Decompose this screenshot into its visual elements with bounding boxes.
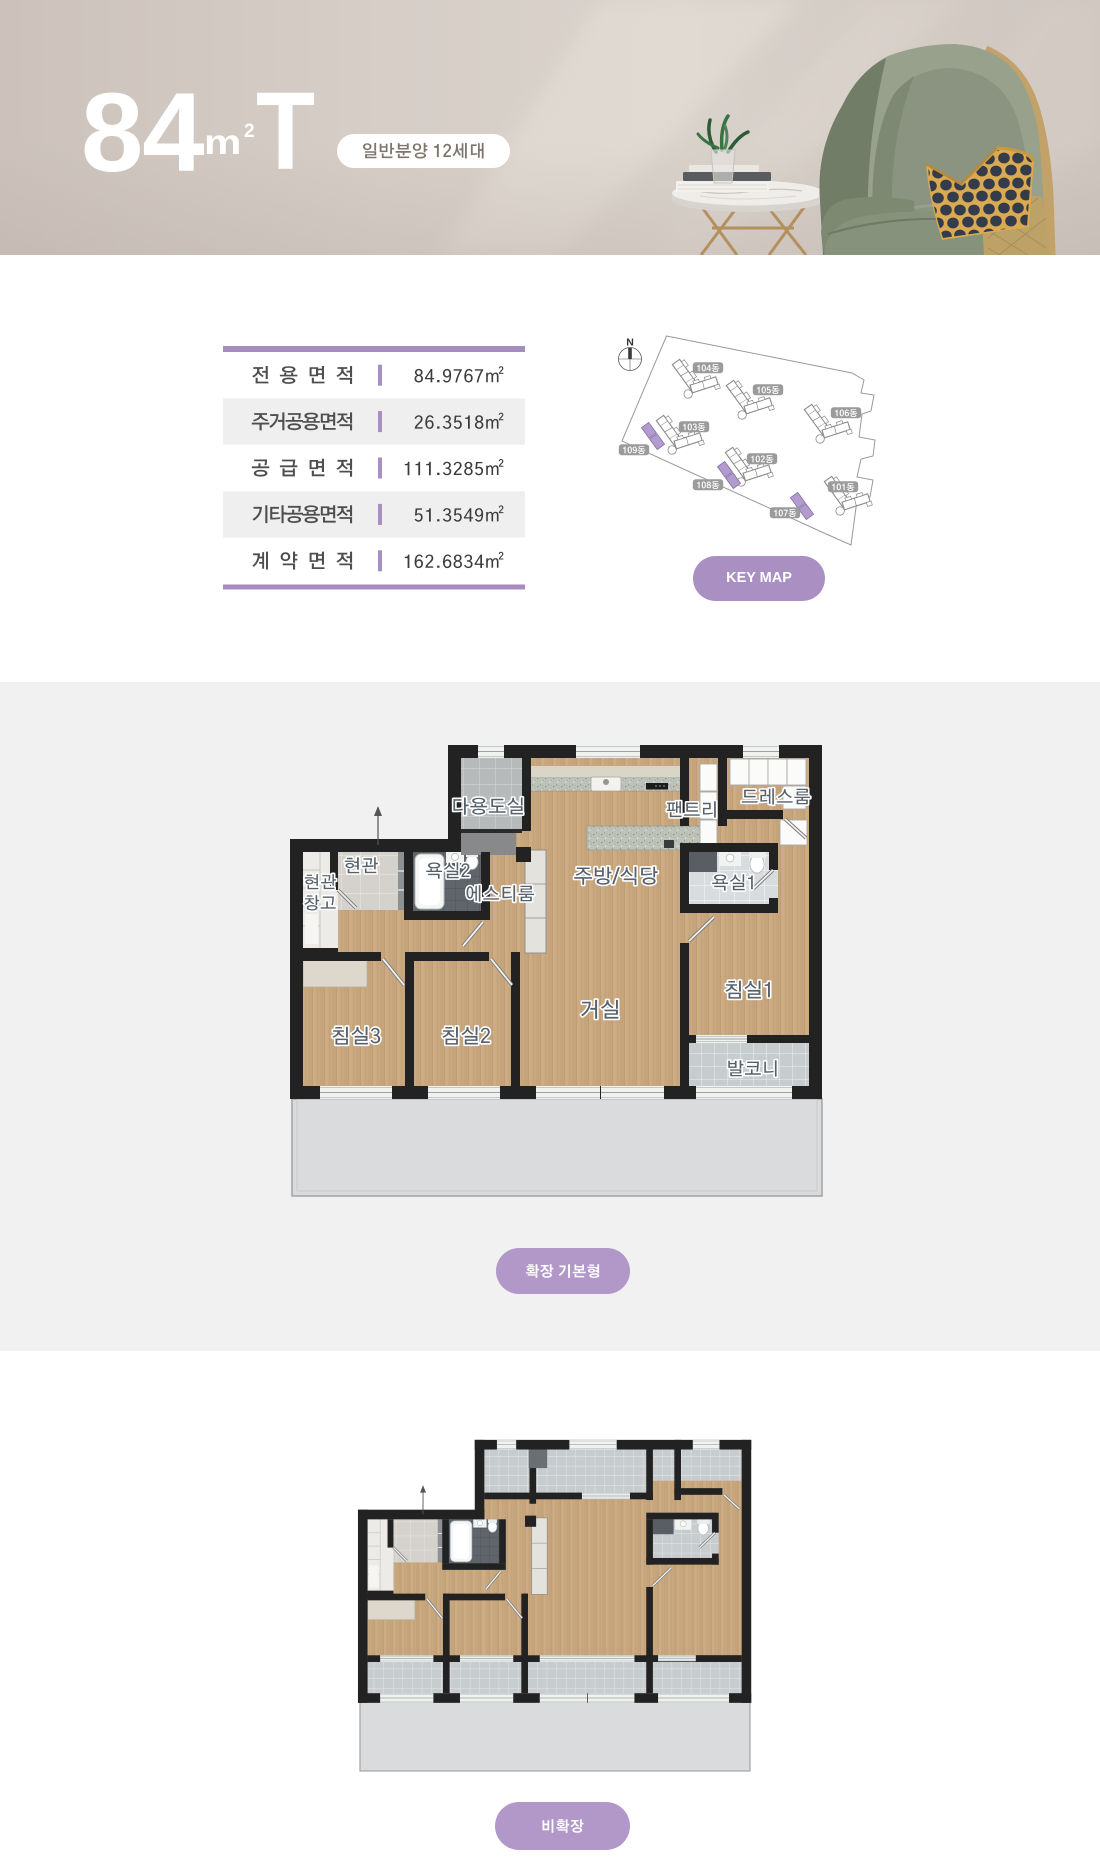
svg-text:N: N <box>626 337 634 349</box>
